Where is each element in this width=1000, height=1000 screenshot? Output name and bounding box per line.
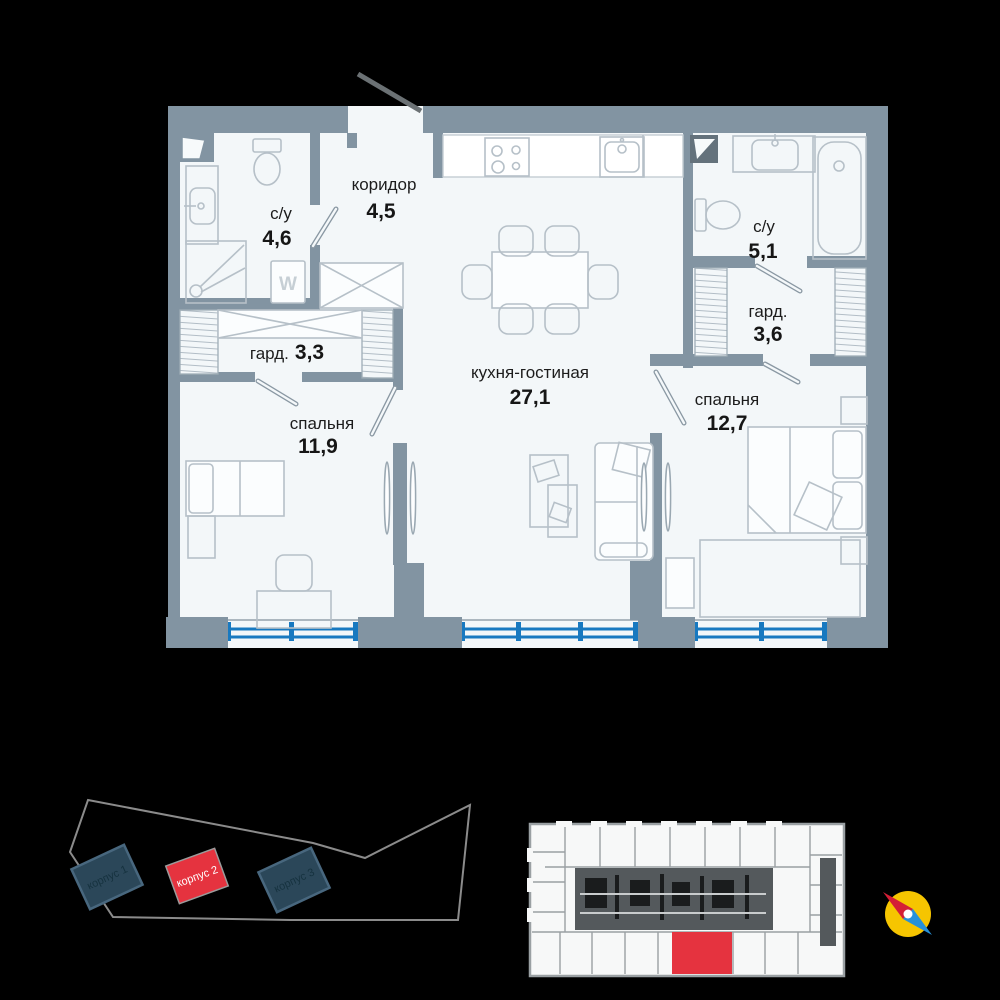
svg-text:гард.: гард. — [749, 302, 788, 321]
svg-text:27,1: 27,1 — [510, 386, 551, 409]
building-korpus-3[interactable]: корпус 3 — [258, 848, 329, 912]
svg-text:12,7: 12,7 — [707, 412, 748, 435]
flat-plan-view: W — [0, 0, 1000, 1000]
svg-text:кухня-гостиная: кухня-гостиная — [471, 363, 589, 382]
kitchen-counter — [443, 135, 683, 177]
building-korpus-1[interactable]: корпус 1 — [71, 845, 142, 909]
svg-text:11,9: 11,9 — [298, 435, 338, 458]
svg-text:5,1: 5,1 — [748, 240, 778, 263]
svg-text:спальня: спальня — [290, 414, 355, 433]
svg-text:гард.3,3: гард.3,3 — [250, 341, 324, 364]
key-plan-selected-unit[interactable] — [672, 932, 732, 974]
compass-icon — [883, 891, 932, 937]
svg-text:3,6: 3,6 — [753, 323, 782, 346]
compass-pivot — [904, 910, 913, 919]
building-korpus-2[interactable]: корпус 2 — [166, 848, 229, 903]
double-bed-icon — [748, 427, 866, 533]
svg-text:коридор: коридор — [352, 175, 417, 194]
tv-stand-icon — [666, 558, 694, 608]
washing-machine-icon: W — [271, 261, 305, 303]
bed-icon — [186, 461, 284, 516]
vent-shaft-left — [178, 133, 214, 162]
svg-text:с/у: с/у — [270, 204, 292, 223]
site-plan: корпус 1 корпус 2 корпус 3 — [70, 800, 470, 920]
apartment-floor-plan: W — [166, 74, 888, 648]
room-label-wardrobe1: гард.3,3 — [250, 341, 324, 364]
washer-label: W — [279, 274, 297, 295]
room-label-bathroom2: с/у 5,1 — [748, 217, 778, 263]
svg-text:4,6: 4,6 — [262, 227, 291, 250]
room-label-wardrobe2: гард. 3,6 — [749, 302, 788, 346]
svg-text:с/у: с/у — [753, 217, 775, 236]
svg-text:4,5: 4,5 — [366, 200, 396, 223]
tv-partition-left — [393, 443, 407, 565]
plan-canvas: W — [0, 0, 1000, 1000]
svg-text:спальня: спальня — [695, 390, 760, 409]
corridor-closet — [320, 263, 403, 308]
entry-door-leaf — [358, 74, 421, 111]
vent-shaft-right — [690, 135, 718, 163]
floor-key-plan — [527, 821, 844, 976]
